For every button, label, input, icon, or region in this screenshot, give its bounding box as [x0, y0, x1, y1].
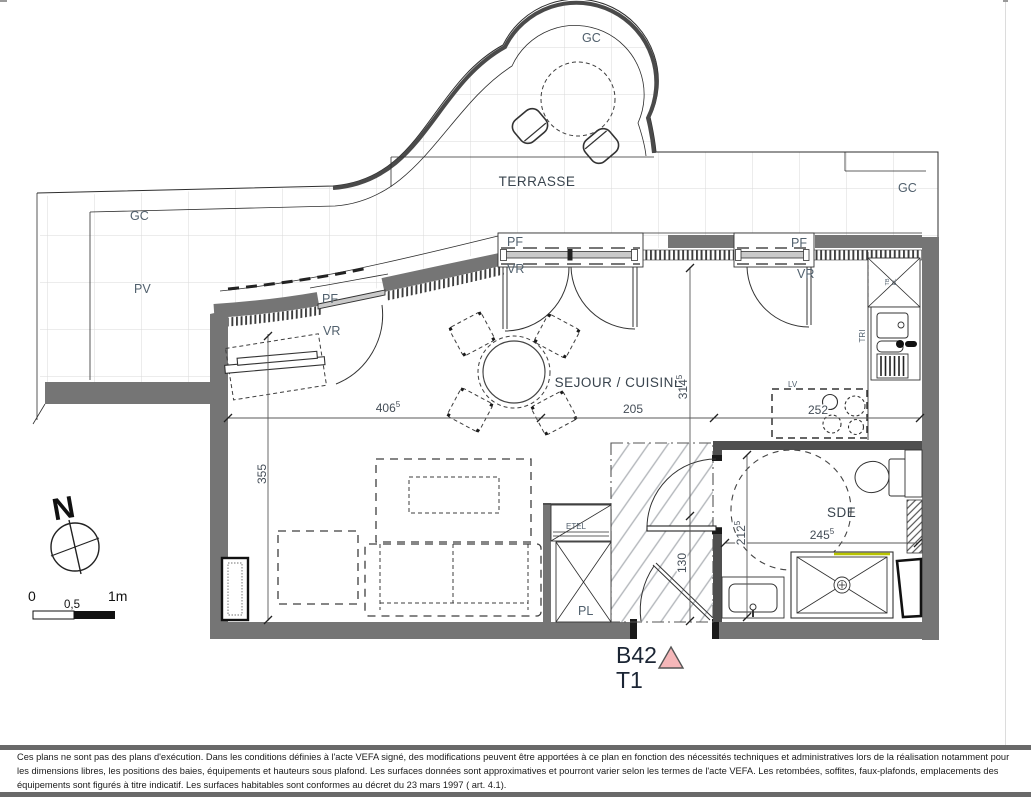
label-tb: TB	[885, 278, 891, 285]
pl-closet: PL	[556, 542, 611, 622]
etel-closet: ETEL	[551, 505, 611, 541]
label-gc-top: GC	[582, 31, 601, 45]
closet-wall	[543, 503, 551, 622]
room-label-sejour: SEJOUR / CUISINE	[555, 375, 684, 390]
page-edge-line	[1005, 0, 1006, 745]
fridge-reservation: TB EL	[868, 258, 920, 307]
unit-type: T1	[616, 667, 643, 693]
scale-segment-white	[33, 611, 74, 619]
toilet-niche	[905, 450, 922, 497]
label-vr-mid: VR	[507, 262, 524, 276]
faucet	[896, 340, 904, 348]
radiator	[222, 558, 248, 620]
label-etel: ETEL	[566, 522, 587, 531]
entry	[611, 443, 713, 622]
shower	[791, 552, 893, 618]
label-pl: PL	[578, 604, 593, 618]
room-label-sde: SDE	[827, 505, 856, 520]
footer-divider-bottom	[0, 792, 1031, 797]
label-tri: TRI	[858, 330, 867, 343]
floor-plan-page: TERRASSE GC GC GC PV	[0, 0, 1031, 800]
room-label-terrasse: TERRASSE	[499, 174, 576, 189]
label-vr-right: VR	[797, 267, 814, 281]
label-pf-right: PF	[791, 236, 807, 250]
dim-205: 205	[623, 402, 643, 416]
facade-wall-band	[668, 235, 734, 248]
scale-half: 0,5	[64, 599, 80, 611]
sde-west-wall	[713, 527, 722, 622]
shutter-band-mid	[643, 250, 736, 260]
label-pf-mid: PF	[507, 235, 523, 249]
terrace-lower-wall	[45, 382, 218, 404]
wall-south	[210, 622, 939, 639]
dim-252: 252	[808, 403, 828, 417]
scale-zero: 0	[28, 588, 36, 604]
door-jamb	[712, 455, 722, 461]
label-lv: LV	[788, 380, 798, 389]
vent-duct	[907, 500, 922, 553]
washbasin	[722, 577, 784, 618]
entry-hatch	[611, 443, 713, 622]
scale-segment-black	[74, 611, 115, 619]
disclaimer-text: Ces plans ne sont pas des plans d'exécut…	[17, 750, 1015, 793]
sde-north-wall	[713, 441, 922, 450]
floor-plan-canvas: TERRASSE GC GC GC PV	[0, 0, 1031, 745]
scale-one: 1m	[108, 588, 127, 604]
label-vr-left: VR	[323, 324, 340, 338]
corner-artifact	[0, 0, 7, 2]
wall-east	[922, 237, 939, 640]
label-el: EL	[892, 279, 898, 286]
label-pv: PV	[134, 282, 151, 296]
dim-355: 355	[255, 464, 269, 484]
unit-number: B42	[616, 642, 657, 668]
dim-130: 130	[675, 553, 689, 573]
label-gc-right: GC	[898, 181, 917, 195]
label-gc-left: GC	[130, 209, 149, 223]
kitchen-sink-unit	[871, 307, 920, 380]
facade-wall-band	[815, 235, 922, 248]
label-pf-left: PF	[322, 292, 338, 306]
entry-doorway-gap	[637, 622, 712, 639]
corner-artifact	[1003, 0, 1008, 2]
